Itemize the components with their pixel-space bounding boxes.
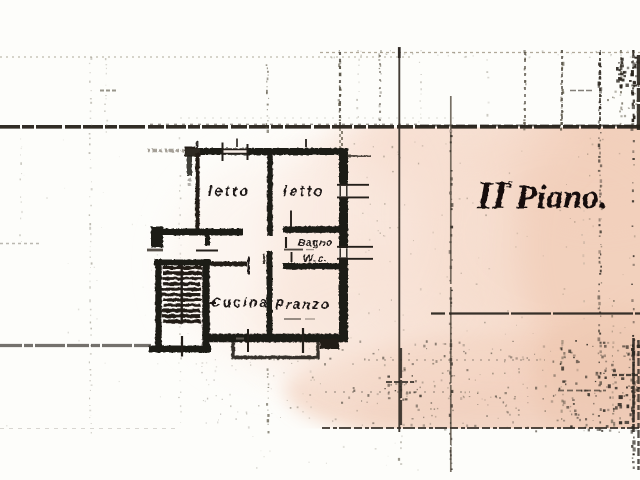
svg-text:letto: letto bbox=[208, 184, 251, 200]
svg-text:Bagno: Bagno bbox=[298, 238, 333, 249]
svg-text:Piano.: Piano. bbox=[515, 179, 608, 216]
svg-text:Cucina: Cucina bbox=[211, 295, 269, 310]
svg-text:Pranzo: Pranzo bbox=[275, 297, 331, 312]
svg-text:II: II bbox=[476, 174, 509, 217]
svg-text:W.c.: W.c. bbox=[303, 253, 328, 265]
svg-text:letto: letto bbox=[283, 184, 325, 200]
svg-text:s: s bbox=[506, 176, 513, 192]
